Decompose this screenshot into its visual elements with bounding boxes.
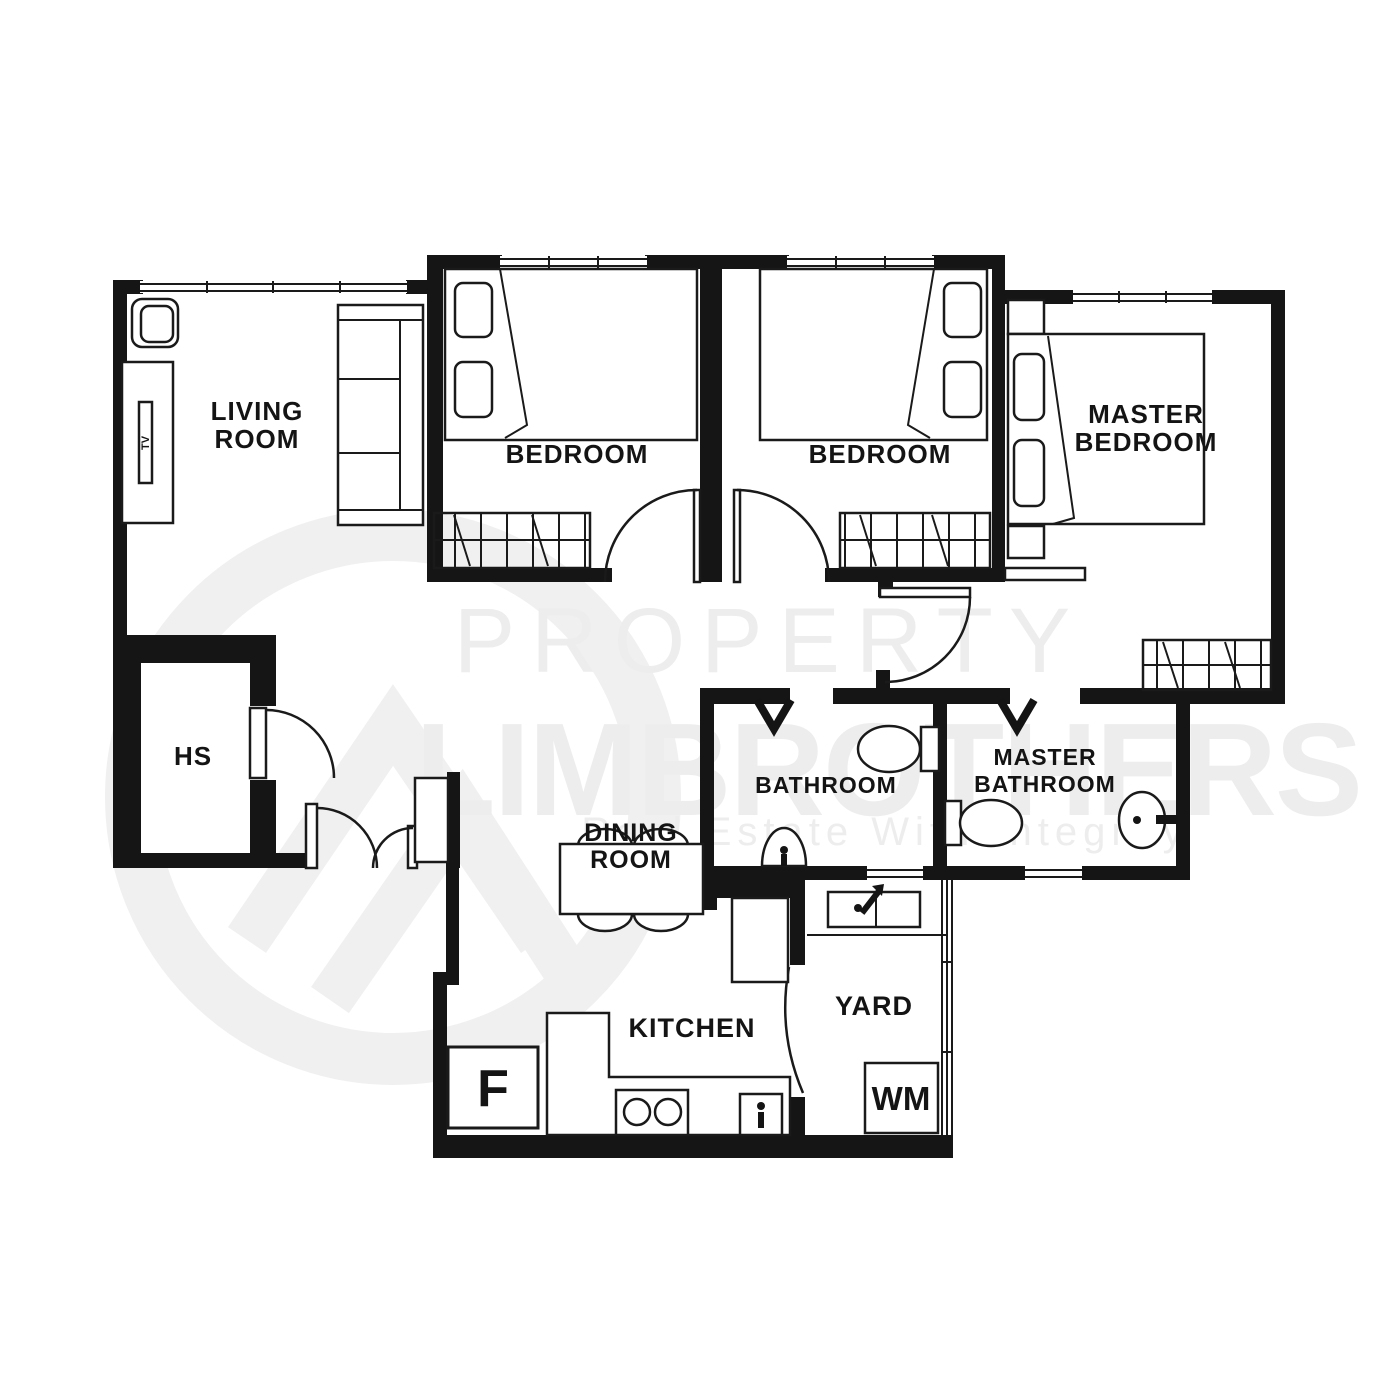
door-bedroom-right [734,490,829,582]
living-room-label-1: LIVING [211,396,304,426]
door-yard [785,967,803,1093]
window-master-bedroom [1073,291,1212,303]
armchair-icon [132,299,178,347]
washing-machine-icon: WM [865,1063,938,1133]
household-shelter-label: HS [174,741,212,771]
bedroom-left: BEDROOM [434,269,697,568]
fridge-icon: F [448,1047,538,1128]
toilet-icon [858,726,939,772]
tv-console-icon: TV [122,362,173,523]
living-room-label-2: ROOM [215,424,300,454]
master-bathroom-label-1: MASTER [993,744,1096,770]
window-living-room [140,281,407,293]
kitchen-label: KITCHEN [629,1013,756,1043]
yard: WM YARD [807,884,947,1133]
bed-icon [760,269,987,440]
yard-label: YARD [835,991,913,1021]
living-room: TV LIVING ROOM [122,299,423,525]
sofa-icon [338,305,423,525]
bed-icon [445,269,697,440]
bedroom-right-label: BEDROOM [809,439,952,469]
tall-cabinet-icon [732,898,788,982]
entrance-cabinet [415,778,448,862]
master-bathroom-label-2: BATHROOM [974,771,1116,797]
watermark-brand-top: PROPERTY [454,590,1086,692]
wardrobe-icon [434,513,590,568]
side-table-icon [1008,300,1044,334]
bedroom-left-label: BEDROOM [506,439,649,469]
window-bathroom [867,867,923,879]
fridge-label: F [477,1060,509,1118]
washing-machine-label: WM [872,1080,931,1117]
window-bedroom-right [787,256,934,268]
bathroom-label: BATHROOM [755,772,897,798]
window-master-bathroom [1025,867,1082,879]
floor-plan-page: PROPERTY LIMBROTHERS Real Estate With In… [0,0,1400,1400]
side-table-icon [1008,526,1044,558]
bedroom-right: BEDROOM [760,269,990,568]
yard-sink-icon [807,884,947,935]
master-bedroom-label-2: BEDROOM [1075,427,1218,457]
window-yard [941,880,953,1135]
toilet-icon [945,800,1022,846]
master-bedroom-label-1: MASTER [1088,399,1204,429]
door-bedroom-left [605,490,700,582]
stove-icon [616,1090,688,1135]
wardrobe-icon [840,513,990,568]
wardrobe-icon [1143,640,1271,690]
kitchen-sink-icon [740,1094,782,1135]
door-household-shelter [250,708,334,778]
console-shelf-icon [1005,568,1085,580]
floor-plan-canvas: PROPERTY LIMBROTHERS Real Estate With In… [0,0,1400,1400]
dining-room-label-1: DINING [584,819,678,847]
window-bedroom-left [500,256,647,268]
tv-label: TV [140,435,152,450]
dining-room-label-2: ROOM [590,846,672,874]
